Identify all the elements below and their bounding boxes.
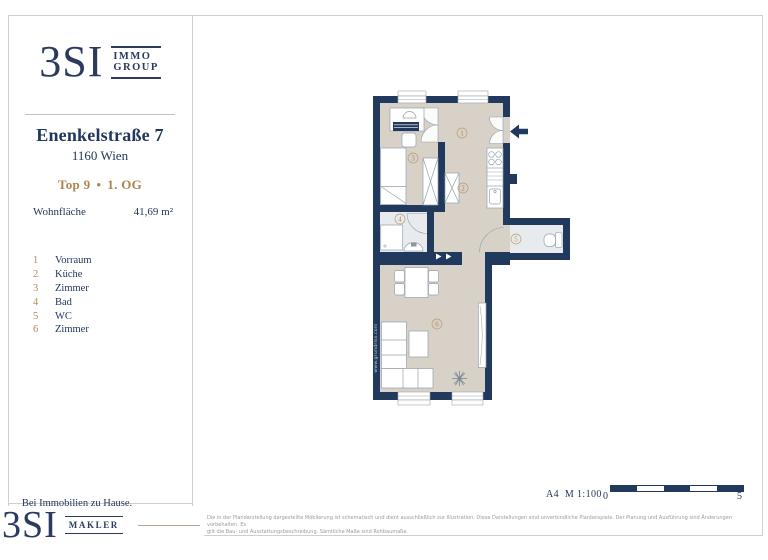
disclaimer-line2: gilt die Bau- und Ausstattungsbeschreibu… [207,529,759,536]
scale-segment [611,486,637,491]
sofa [382,322,407,369]
logo-rule [138,525,200,526]
brand-sub-line1: IMMO [113,51,158,63]
bed [381,148,406,205]
disclaimer-text: Die in der Plandarstellung dargestellte … [207,515,759,535]
legend-row-wc: 5 WC [33,309,173,323]
desk-chair [402,133,416,147]
living-area-row: Wohnfläche 41,69 m² [33,206,173,218]
disclaimer-line1: Die in der Plandarstellung dargestellte … [207,515,759,529]
floor-label: 1. OG [107,177,142,192]
living-area-label: Wohnfläche [33,206,86,218]
plan-room-number-6: 6 [435,321,439,329]
plant-icon [452,371,467,386]
plan-room-number-5: 5 [514,236,518,244]
plan-room-number-4: 4 [398,216,402,224]
legend-row-vorraum: 1 Vorraum [33,254,173,268]
coffee-table [409,331,428,357]
legend-row-zimmer6: 6 Zimmer [33,323,173,337]
legend-number: 3 [33,283,43,294]
room-legend: 1 Vorraum 2 Küche 3 Zimmer 4 Bad 5 WC 6 … [33,254,173,337]
brand-logo-top: 3SI IMMO GROUP [8,42,192,82]
legend-label: WC [55,311,72,322]
dining-chair [429,284,439,296]
toilet-tank [556,233,563,248]
panel-divider [192,15,193,534]
kitchen-sink [490,189,501,204]
dining-table [405,268,428,298]
legend-number: 6 [33,324,43,335]
legend-row-kueche: 2 Küche [33,268,173,282]
legend-number: 1 [33,255,43,266]
legend-label: Zimmer [55,283,89,294]
legend-row-bad: 4 Bad [33,295,173,309]
scale-end-label: 5 [737,491,742,502]
toilet-bowl [544,234,556,247]
living-area-value: 41,69 m² [134,206,173,218]
legend-label: Küche [55,269,82,280]
legend-number: 5 [33,311,43,322]
legend-label: Bad [55,297,72,308]
scale-start-label: 0 [603,491,608,502]
entrance-arrow-icon [510,125,528,139]
address-city: 1160 Wien [8,148,192,164]
brand-logo-bottom: 3SI MAKLER [2,506,204,544]
unit-floor-line: Top 9•1. OG [8,177,192,193]
plan-room-number-1: 1 [460,130,464,138]
brand-sub-line2: GROUP [113,62,158,74]
sofa-chaise [382,369,434,389]
floor-plan: 1 2 3 4 5 6 www.grundriss.com [355,85,580,415]
dining-chair [395,271,405,283]
scale-segment [637,486,663,491]
scale-segment [664,486,690,491]
legend-number: 2 [33,269,43,280]
legend-label: Zimmer [55,324,89,335]
bullet-separator: • [96,177,101,192]
brand-name: 3SI [2,508,58,542]
address-street: Enenkelstraße 7 [8,125,192,146]
logo-divider-rule [25,114,175,115]
scale-bar [610,485,744,492]
brand-sub: IMMO GROUP [111,46,160,79]
dining-chair [429,271,439,283]
wc-fixtures [544,233,562,248]
legend-label: Vorraum [55,255,92,266]
legend-row-zimmer3: 3 Zimmer [33,282,173,296]
legend-number: 4 [33,297,43,308]
bath-sink-tap [411,243,417,247]
unit-label: Top 9 [58,177,90,192]
scale-segment [690,486,716,491]
desk-monitor [393,122,419,131]
brand-name: 3SI [39,42,103,82]
brand-sub: MAKLER [65,516,123,534]
floorplan-page: 3SI IMMO GROUP Enenkelstraße 7 1160 Wien… [0,0,768,560]
format-scale-label: A4 M 1:100 [546,489,602,500]
plan-room-number-3: 3 [411,155,415,163]
plan-watermark: www.grundriss.com [373,323,379,372]
plan-room-number-2: 2 [461,185,465,193]
dining-chair [395,284,405,296]
